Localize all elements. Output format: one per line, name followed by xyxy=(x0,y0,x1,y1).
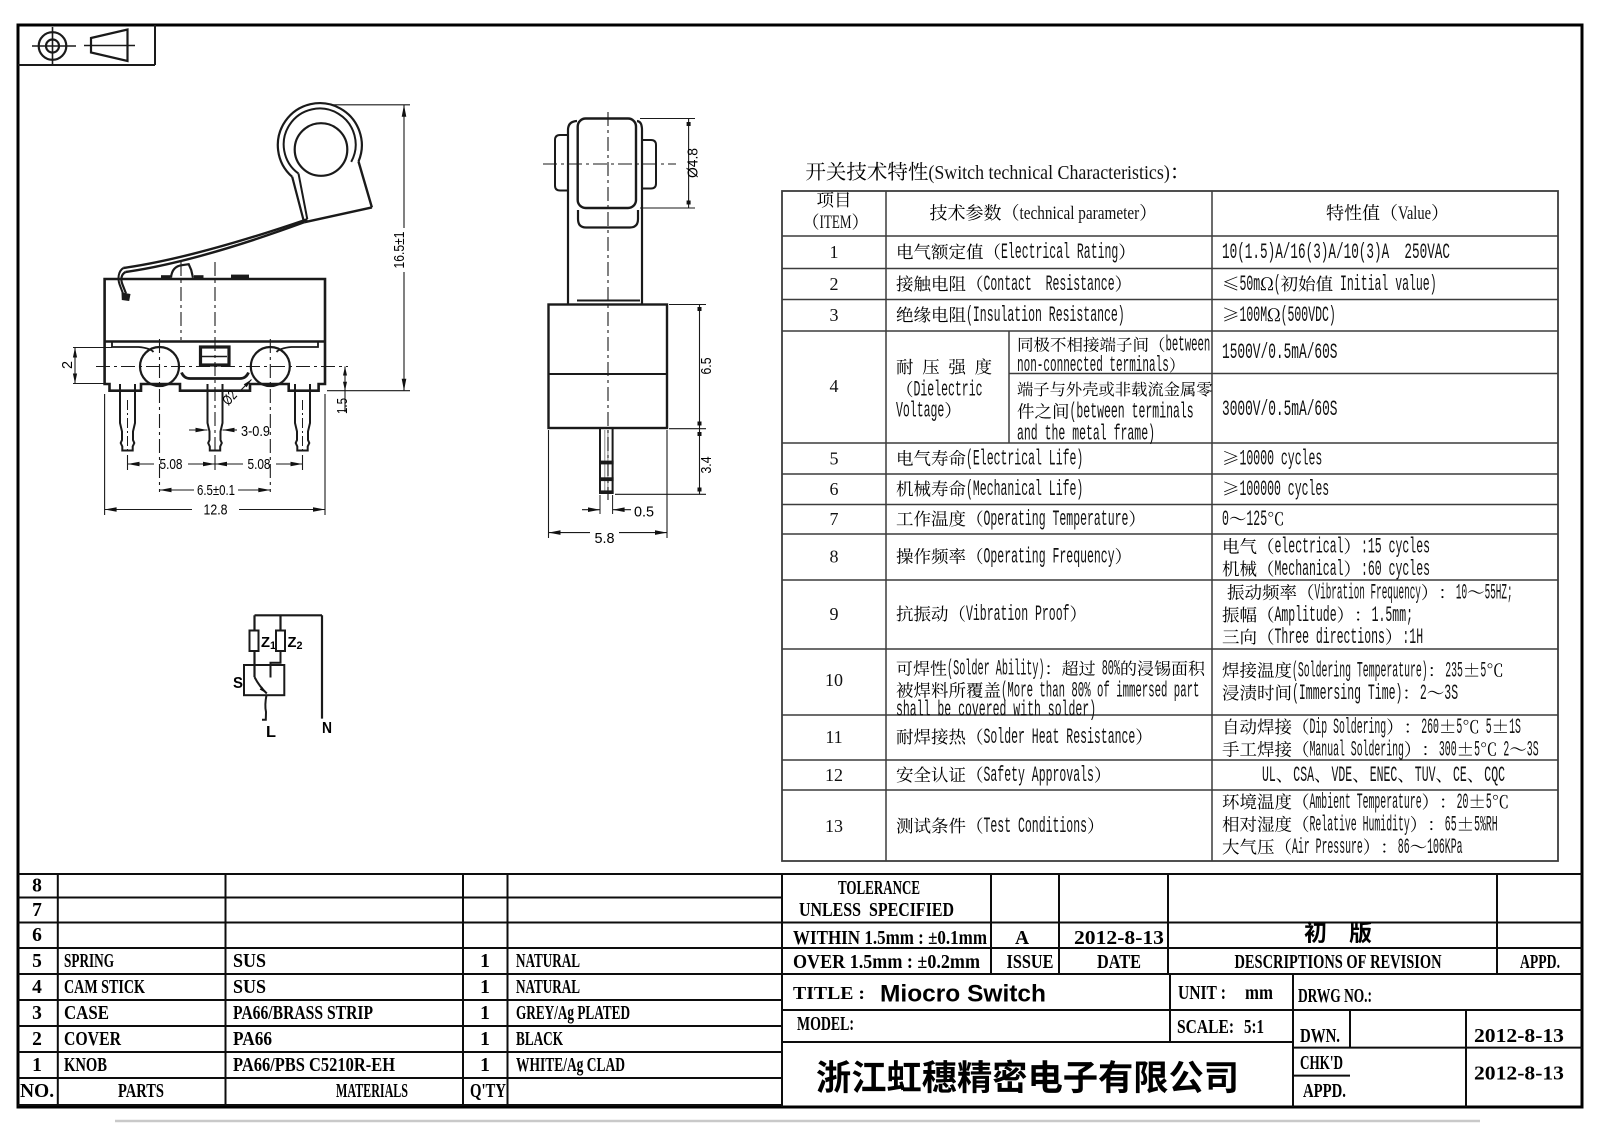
svg-text:ISSUE: ISSUE xyxy=(1007,952,1054,973)
svg-text:(: ( xyxy=(1274,272,1281,297)
svg-text:3000V/0.5mA/60S: 3000V/0.5mA/60S xyxy=(1222,397,1338,422)
svg-text:A: A xyxy=(1015,928,1029,949)
svg-text:1: 1 xyxy=(480,1003,490,1024)
svg-text:Miocro Switch: Miocro Switch xyxy=(880,981,1046,1008)
svg-text:Three directions: Three directions xyxy=(1275,625,1385,650)
svg-text:CASE: CASE xyxy=(64,1003,109,1024)
svg-text:TITLE :: TITLE : xyxy=(793,983,865,1003)
svg-text:Safety Approvals: Safety Approvals xyxy=(984,763,1094,788)
svg-text:DWN.: DWN. xyxy=(1300,1026,1340,1047)
svg-text:SCALE:: SCALE: xyxy=(1177,1017,1234,1038)
svg-text:3S: 3S xyxy=(1527,738,1539,763)
svg-text:5: 5 xyxy=(830,449,839,469)
svg-text:SPRING: SPRING xyxy=(64,951,114,972)
svg-text:100M: 100M xyxy=(1240,303,1268,328)
svg-text:Value: Value xyxy=(1398,203,1431,224)
svg-text:DRWG NO.:: DRWG NO.: xyxy=(1298,986,1372,1007)
svg-text:COVER: COVER xyxy=(64,1029,122,1050)
svg-text:1S: 1S xyxy=(1509,715,1521,740)
svg-text:NATURAL: NATURAL xyxy=(516,977,580,998)
svg-text:Voltage: Voltage xyxy=(896,399,944,424)
svg-text:TOLERANCE: TOLERANCE xyxy=(838,878,920,899)
svg-text:4: 4 xyxy=(830,376,839,396)
svg-text:S: S xyxy=(233,675,243,692)
svg-text:PA66/PBS C5210R-EH: PA66/PBS C5210R-EH xyxy=(233,1055,395,1076)
svg-text:WITHIN 1.5mm : ±0.1mm: WITHIN 1.5mm : ±0.1mm xyxy=(793,928,987,949)
svg-text:10: 10 xyxy=(825,670,843,690)
svg-text:VDE: VDE xyxy=(1332,763,1353,788)
svg-text:6: 6 xyxy=(830,479,839,499)
svg-text:5: 5 xyxy=(1474,738,1480,763)
svg-text:1: 1 xyxy=(480,1055,490,1076)
svg-text:Vibration Proof: Vibration Proof xyxy=(966,602,1070,627)
svg-text:PARTS: PARTS xyxy=(118,1081,164,1102)
svg-text:GREY/Ag PLATED: GREY/Ag PLATED xyxy=(516,1003,630,1024)
svg-text:PA66/BRASS STRIP: PA66/BRASS STRIP xyxy=(233,1003,373,1024)
svg-text:Initial value): Initial value) xyxy=(1333,272,1437,297)
svg-text:L: L xyxy=(266,724,276,741)
svg-text:0: 0 xyxy=(1222,507,1229,532)
svg-text:APPD.: APPD. xyxy=(1520,952,1560,973)
svg-text:2: 2 xyxy=(1498,738,1510,763)
svg-text:(Switch technical Characterist: (Switch technical Characteristics) xyxy=(928,162,1169,184)
svg-text:Q'TY: Q'TY xyxy=(470,1081,506,1102)
svg-text:11: 11 xyxy=(825,727,842,747)
svg-text:Contact Resistance: Contact Resistance xyxy=(984,272,1115,297)
svg-text:CAM STICK: CAM STICK xyxy=(64,977,146,998)
svg-text:(Electrical Life): (Electrical Life) xyxy=(966,447,1083,472)
svg-text:6.5±0.1: 6.5±0.1 xyxy=(197,482,235,499)
svg-text:2012-8-13: 2012-8-13 xyxy=(1474,1064,1564,1085)
svg-text:16.5±1: 16.5±1 xyxy=(391,232,408,269)
svg-text:50m: 50m xyxy=(1240,272,1261,297)
svg-text:Z: Z xyxy=(261,634,270,651)
svg-text:Dip Soldering: Dip Soldering xyxy=(1310,715,1387,740)
svg-text:1: 1 xyxy=(480,1029,490,1050)
svg-text:UNIT :: UNIT : xyxy=(1178,983,1226,1004)
svg-text:1.5: 1.5 xyxy=(334,398,351,414)
svg-text:3S: 3S xyxy=(1444,681,1458,706)
svg-text:260: 260 xyxy=(1421,715,1439,740)
svg-text:N: N xyxy=(322,720,332,737)
svg-text:CHK'D: CHK'D xyxy=(1300,1053,1343,1074)
svg-text:CQC: CQC xyxy=(1484,763,1505,788)
svg-text:235: 235 xyxy=(1445,659,1463,684)
svg-text:10000 cycles: 10000 cycles xyxy=(1240,447,1323,472)
svg-text:6: 6 xyxy=(32,925,42,946)
svg-text:5: 5 xyxy=(1480,659,1486,684)
svg-text:0.5: 0.5 xyxy=(634,504,654,521)
svg-text:DESCRIPTIONS OF REVISION: DESCRIPTIONS OF REVISION xyxy=(1235,952,1442,973)
svg-text:5.8: 5.8 xyxy=(595,530,615,547)
svg-text:5: 5 xyxy=(1486,790,1492,815)
svg-text:125: 125 xyxy=(1246,507,1267,532)
svg-text:2: 2 xyxy=(297,640,303,652)
svg-text:2: 2 xyxy=(59,361,76,369)
svg-text:2: 2 xyxy=(1420,681,1427,706)
svg-text:Vibration Frequency: Vibration Frequency xyxy=(1315,581,1421,606)
svg-text:86: 86 xyxy=(1398,835,1410,860)
svg-text:Operating Frequency: Operating Frequency xyxy=(984,545,1115,570)
svg-text:7: 7 xyxy=(32,900,42,921)
svg-text:5%RH: 5%RH xyxy=(1474,813,1498,838)
svg-text:Air Pressure: Air Pressure xyxy=(1292,835,1363,860)
svg-text:5.08: 5.08 xyxy=(160,456,183,473)
svg-text::15 cycles: :15 cycles xyxy=(1361,535,1430,560)
svg-text:ITEM: ITEM xyxy=(820,212,852,233)
svg-text:5: 5 xyxy=(1456,715,1462,740)
svg-text:Electrical Rating: Electrical Rating xyxy=(1001,240,1118,265)
svg-text:non-connected terminals: non-connected terminals xyxy=(1017,353,1169,378)
svg-text:OVER 1.5mm : ±0.2mm: OVER 1.5mm : ±0.2mm xyxy=(793,952,980,973)
svg-text:3.4: 3.4 xyxy=(698,457,715,474)
svg-text:CE: CE xyxy=(1453,763,1467,788)
svg-text:CSA: CSA xyxy=(1293,763,1314,788)
svg-text:(500VDC): (500VDC) xyxy=(1281,303,1336,328)
svg-text:1: 1 xyxy=(480,977,490,998)
svg-text:5: 5 xyxy=(32,951,42,972)
svg-text:8: 8 xyxy=(32,876,42,897)
svg-text:Relative Humidity: Relative Humidity xyxy=(1310,813,1410,838)
svg-text:(Soldering Temperature): (Soldering Temperature) xyxy=(1292,659,1428,684)
svg-text:5: 5 xyxy=(1480,715,1492,740)
svg-text:1: 1 xyxy=(480,951,490,972)
svg-text:13: 13 xyxy=(825,816,843,836)
svg-text:Z: Z xyxy=(288,634,297,651)
svg-text:5.08: 5.08 xyxy=(248,456,271,473)
svg-text:1: 1 xyxy=(32,1055,42,1076)
svg-text:UL: UL xyxy=(1262,763,1276,788)
svg-text:Manual Soldering: Manual Soldering xyxy=(1310,738,1404,763)
svg-text:Solder Heat Resistance: Solder Heat Resistance xyxy=(984,725,1136,750)
svg-text:ENEC: ENEC xyxy=(1370,763,1398,788)
svg-text:10(1.5)A/16(3)A/10(3)A 250VAC: 10(1.5)A/16(3)A/10(3)A 250VAC xyxy=(1222,240,1450,265)
svg-text:MODEL:: MODEL: xyxy=(797,1014,854,1035)
svg-text:3: 3 xyxy=(32,1003,42,1024)
svg-text:Operating Temperature: Operating Temperature xyxy=(984,507,1129,532)
svg-text:DATE: DATE xyxy=(1097,952,1141,973)
svg-text:2012-8-13: 2012-8-13 xyxy=(1074,928,1164,949)
svg-text:2012-8-13: 2012-8-13 xyxy=(1474,1026,1564,1047)
svg-text:Test Conditions: Test Conditions xyxy=(984,814,1088,839)
svg-text:12: 12 xyxy=(825,765,843,785)
svg-text:2: 2 xyxy=(830,274,839,294)
svg-text:8: 8 xyxy=(830,547,839,567)
svg-text:between: between xyxy=(1166,333,1211,358)
svg-text:and the metal frame): and the metal frame) xyxy=(1017,422,1155,447)
svg-text::60 cycles: :60 cycles xyxy=(1361,557,1430,582)
svg-text:mm: mm xyxy=(1245,983,1273,1004)
svg-text:12.8: 12.8 xyxy=(204,502,228,519)
svg-text:300: 300 xyxy=(1439,738,1457,763)
svg-text:(Immersing Time): (Immersing Time) xyxy=(1292,681,1402,706)
svg-text:BLACK: BLACK xyxy=(516,1029,564,1050)
svg-text:2: 2 xyxy=(32,1029,42,1050)
svg-text:10: 10 xyxy=(1456,581,1467,606)
svg-text:100000 cycles: 100000 cycles xyxy=(1240,477,1330,502)
svg-text:9: 9 xyxy=(830,604,839,624)
svg-text:UNLESS SPECIFIED: UNLESS SPECIFIED xyxy=(799,900,954,921)
svg-text:106KPa: 106KPa xyxy=(1427,835,1462,860)
svg-text:MATERIALS: MATERIALS xyxy=(336,1081,408,1102)
svg-text:APPD.: APPD. xyxy=(1303,1081,1346,1102)
svg-text:(Mechanical Life): (Mechanical Life) xyxy=(966,477,1083,502)
svg-text:4: 4 xyxy=(32,977,42,998)
svg-text:20: 20 xyxy=(1457,790,1469,815)
svg-text:WHITE/Ag CLAD: WHITE/Ag CLAD xyxy=(516,1055,625,1076)
svg-text:1500V/0.5mA/60S: 1500V/0.5mA/60S xyxy=(1222,340,1338,365)
svg-text:shall be covered with solder): shall be covered with solder) xyxy=(896,698,1096,723)
svg-text:7: 7 xyxy=(830,509,839,529)
svg-text:65: 65 xyxy=(1445,813,1457,838)
svg-text:PA66: PA66 xyxy=(233,1029,272,1050)
svg-text:Mechanical: Mechanical xyxy=(1275,557,1344,582)
svg-text:SUS: SUS xyxy=(233,951,266,972)
svg-text:TUV: TUV xyxy=(1415,763,1436,788)
svg-text:6.5: 6.5 xyxy=(698,358,715,375)
svg-text:(Insulation Resistance): (Insulation Resistance) xyxy=(966,303,1125,328)
svg-text:3: 3 xyxy=(830,305,839,325)
svg-text:1: 1 xyxy=(830,242,839,262)
svg-text:SUS: SUS xyxy=(233,977,266,998)
svg-text:NATURAL: NATURAL xyxy=(516,951,580,972)
svg-text::1H: :1H xyxy=(1402,625,1423,650)
svg-text:Ø4.8: Ø4.8 xyxy=(685,148,702,178)
svg-text:NO.: NO. xyxy=(20,1081,54,1102)
svg-text:technical parameter: technical parameter xyxy=(1020,203,1140,224)
svg-text:electrical: electrical xyxy=(1275,535,1344,560)
svg-text:3-0.9: 3-0.9 xyxy=(241,423,270,440)
svg-text:5:1: 5:1 xyxy=(1244,1017,1264,1038)
svg-text:55HZ;: 55HZ; xyxy=(1485,581,1513,606)
svg-text:KNOB: KNOB xyxy=(64,1055,107,1076)
svg-text:Ambient Temperature: Ambient Temperature xyxy=(1310,790,1422,815)
